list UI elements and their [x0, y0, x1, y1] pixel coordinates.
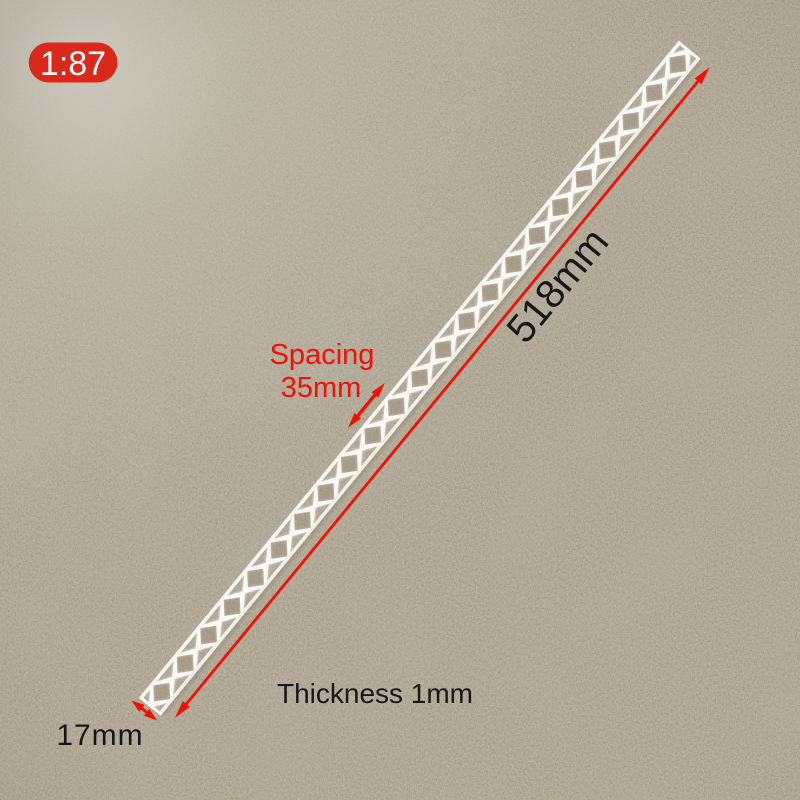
svg-text:Spacing: Spacing: [270, 339, 375, 371]
svg-text:35mm: 35mm: [281, 372, 362, 404]
svg-text:17mm: 17mm: [56, 719, 143, 752]
svg-text:1:87: 1:87: [40, 45, 106, 83]
svg-text:Thickness 1mm: Thickness 1mm: [277, 678, 473, 709]
